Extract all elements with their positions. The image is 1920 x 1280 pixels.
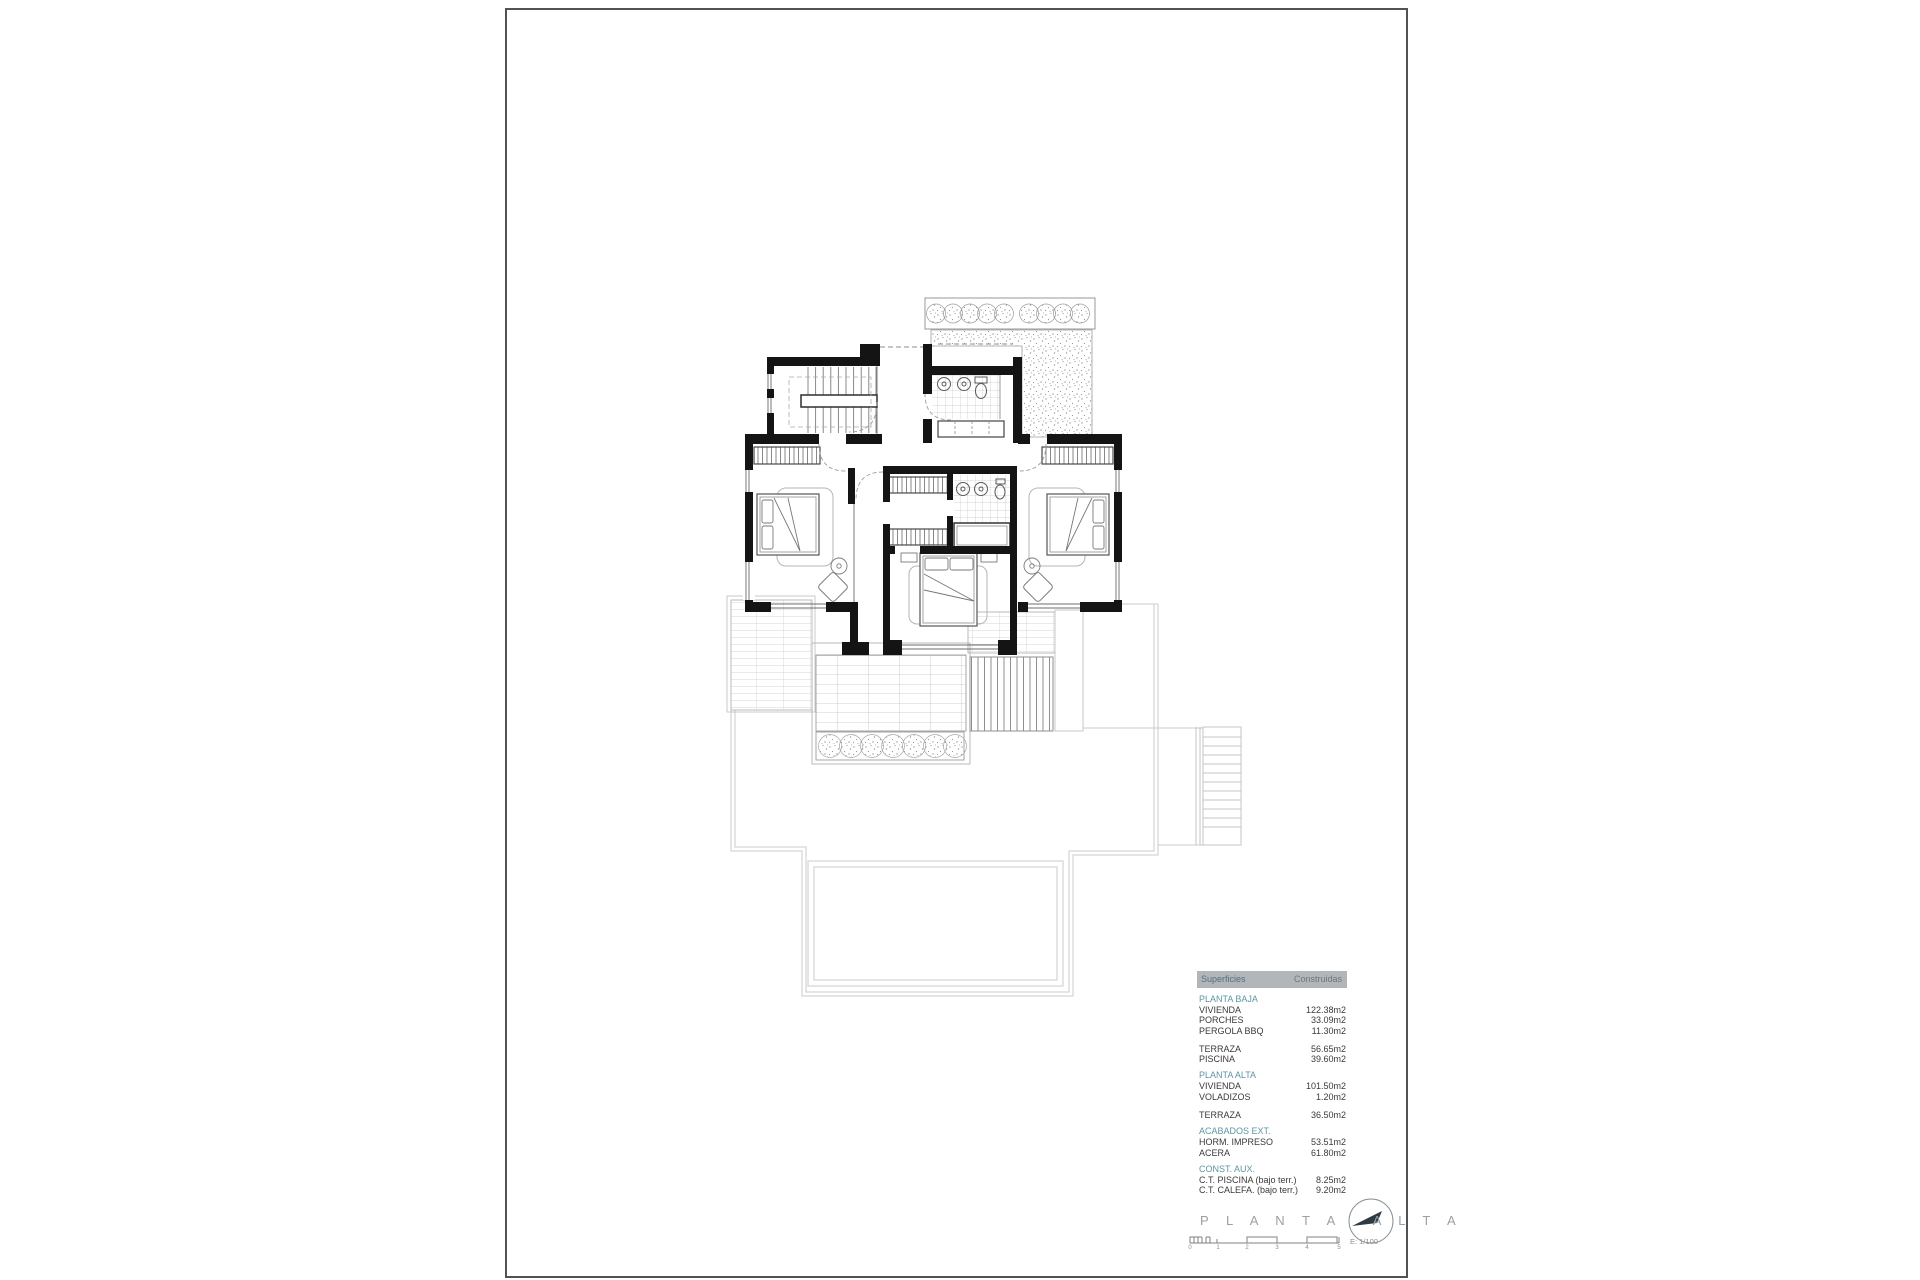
scale-tick: 0: [1185, 1245, 1195, 1251]
stair-handrail: [801, 395, 877, 407]
col-construidas: Construidas: [1294, 971, 1342, 988]
areas-table: Superficies Construidas PLANTA BAJA VIVI…: [1197, 971, 1347, 1196]
table-row: VOLADIZOS 1.20m2: [1197, 1092, 1347, 1102]
scale-label: E: 1/100: [1350, 1237, 1378, 1246]
table-row: VIVIENDA 101.50m2: [1197, 1081, 1347, 1091]
terrace-center: [812, 643, 970, 764]
col-superficies: Superficies: [1201, 971, 1246, 988]
bed-left: [757, 494, 819, 555]
nightstand-icon: [901, 553, 917, 562]
scale-tick: 2: [1242, 1245, 1252, 1251]
group-const-aux: CONST. AUX. C.T. PISCINA (bajo terr.) 8.…: [1197, 1164, 1347, 1196]
plan-title: P L A N T A A L T A: [1200, 1213, 1463, 1228]
group-acabados: ACABADOS EXT. HORM. IMPRESO 53.51m2 ACER…: [1197, 1126, 1347, 1158]
staircase: [789, 367, 877, 433]
bed-master: [920, 553, 977, 626]
table-row: PERGOLA BBQ 11.30m2: [1197, 1026, 1347, 1036]
group-terraza-piscina: TERRAZA 56.65m2 PISCINA 39.60m2: [1197, 1044, 1347, 1065]
bedroom-left-furniture: [757, 488, 849, 603]
group-planta-alta: PLANTA ALTA VIVIENDA 101.50m2 VOLADIZOS …: [1197, 1070, 1347, 1102]
bathroom-top: [932, 375, 1000, 419]
side-table-icon: [831, 558, 847, 574]
group-planta-baja: PLANTA BAJA VIVIENDA 122.38m2 PORCHES 33…: [1197, 994, 1347, 1036]
table-row: C.T. PISCINA (bajo terr.) 8.25m2: [1197, 1175, 1347, 1185]
scale-tick: 5: [1334, 1245, 1344, 1251]
table-row: C.T. CALEFA. (bajo terr.) 9.20m2: [1197, 1185, 1347, 1195]
bedroom-right-furniture: [1022, 488, 1109, 603]
pergola-strip: [925, 298, 1095, 329]
group-title: PLANTA ALTA: [1197, 1070, 1347, 1081]
scale-tick: 1: [1213, 1245, 1223, 1251]
floor-plan-drawing: [0, 0, 1920, 1280]
group-title: ACABADOS EXT.: [1197, 1126, 1347, 1137]
bed-right: [1047, 494, 1109, 555]
terrace-left: [727, 596, 815, 712]
bath-counter: [954, 523, 1010, 548]
scale-tick: 4: [1302, 1245, 1312, 1251]
chair-icon: [1022, 571, 1053, 602]
group-title: CONST. AUX.: [1197, 1164, 1347, 1175]
wardrobe-dressing-bottom: [888, 529, 948, 545]
areas-table-header: Superficies Construidas: [1197, 971, 1347, 988]
table-row: PORCHES 33.09m2: [1197, 1015, 1347, 1025]
wardrobe-right-bedroom: [1042, 447, 1113, 464]
chair-icon: [817, 571, 848, 602]
dresser-top: [938, 421, 1004, 437]
exterior-stairs: [1196, 727, 1241, 845]
scale-bar: [1190, 1237, 1339, 1243]
page: Superficies Construidas PLANTA BAJA VIVI…: [0, 0, 1920, 1280]
scale-tick: 3: [1272, 1245, 1282, 1251]
group-terraza-alta: TERRAZA 36.50m2: [1197, 1110, 1347, 1120]
group-title: PLANTA BAJA: [1197, 994, 1347, 1005]
wardrobe-dressing-top: [888, 477, 948, 493]
table-row: PISCINA 39.60m2: [1197, 1054, 1347, 1064]
table-row: TERRAZA 36.50m2: [1197, 1110, 1347, 1120]
bathroom-center: [954, 475, 1010, 548]
terrace-right: [968, 610, 1083, 731]
table-row: VIVIENDA 122.38m2: [1197, 1005, 1347, 1015]
table-row: TERRAZA 56.65m2: [1197, 1044, 1347, 1054]
wardrobe-left-bedroom: [754, 447, 820, 464]
planter-bushes: [816, 732, 967, 760]
table-row: ACERA 61.80m2: [1197, 1148, 1347, 1158]
nightstand-icon: [981, 553, 997, 562]
table-row: HORM. IMPRESO 53.51m2: [1197, 1137, 1347, 1147]
